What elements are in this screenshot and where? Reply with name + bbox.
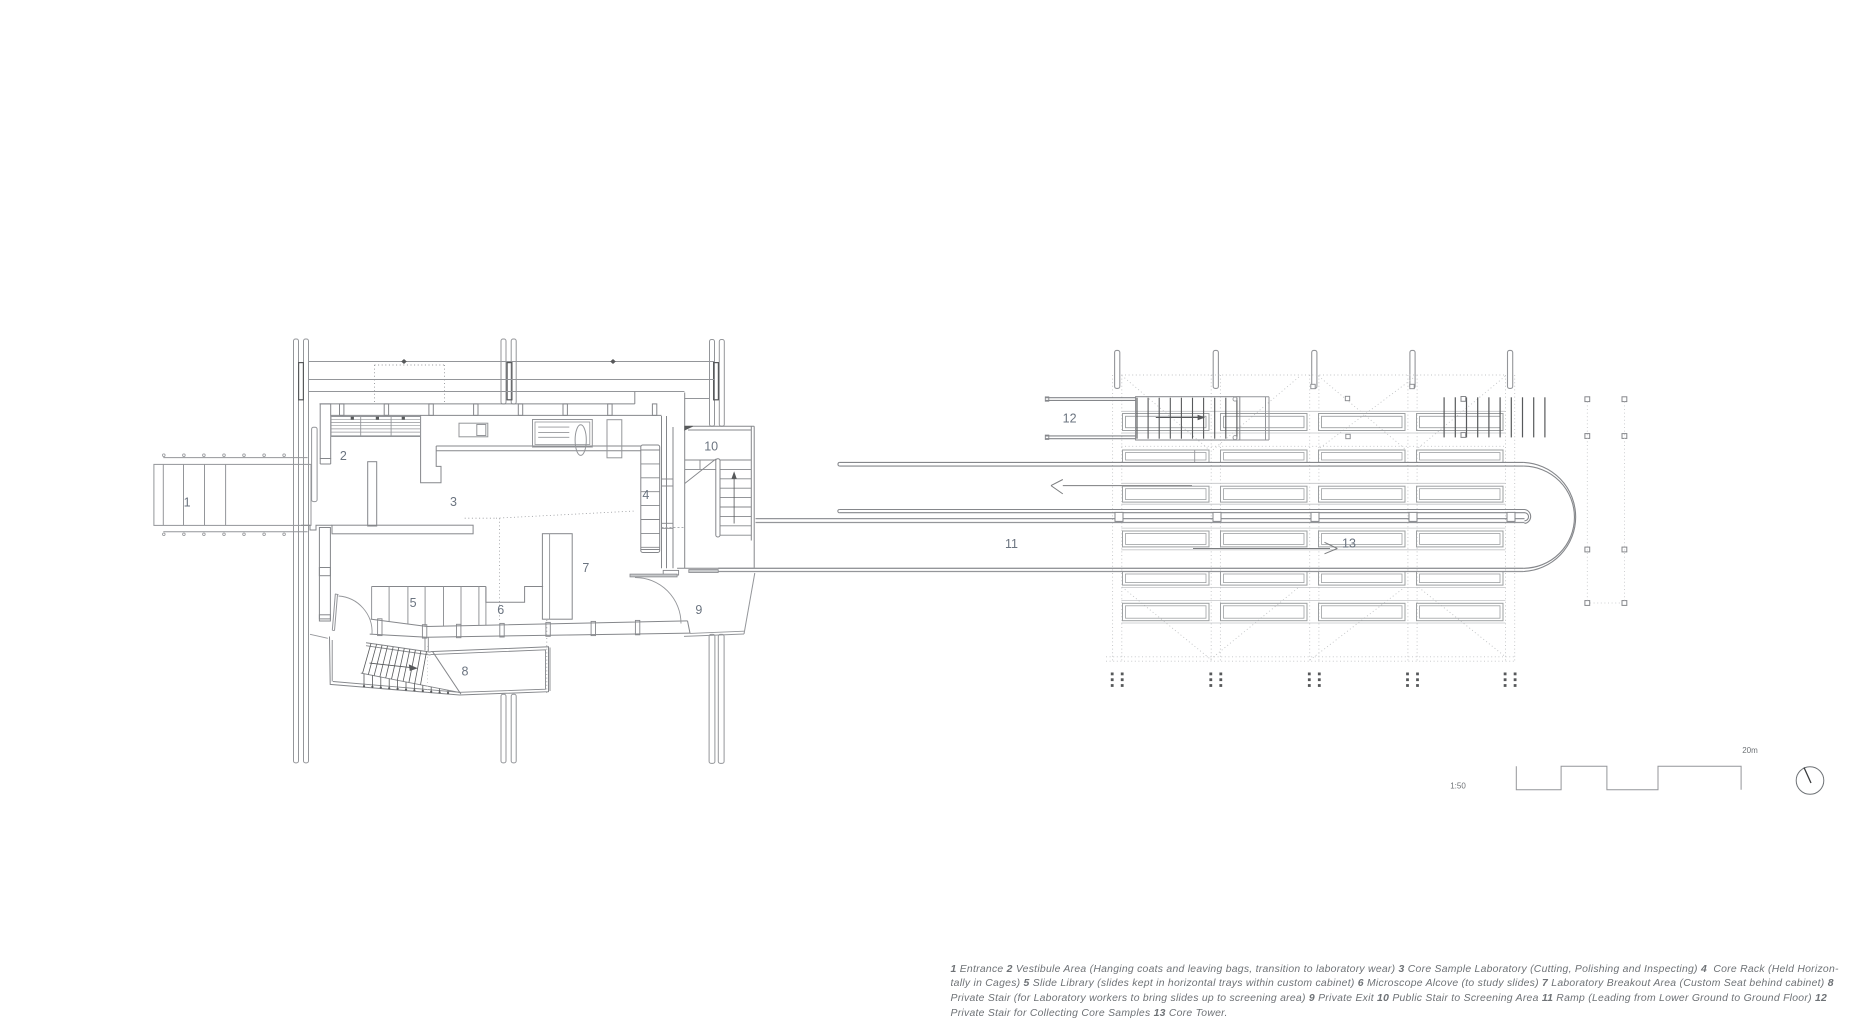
svg-text:6: 6	[497, 603, 504, 617]
svg-text:20m: 20m	[1742, 746, 1758, 755]
svg-text:11: 11	[1005, 537, 1018, 551]
svg-text:3: 3	[450, 495, 457, 509]
svg-text:1: 1	[184, 496, 191, 510]
svg-text:8: 8	[462, 665, 469, 679]
svg-text:10: 10	[704, 440, 718, 454]
svg-text:12: 12	[1063, 412, 1077, 426]
svg-text:4: 4	[642, 488, 649, 502]
svg-text:13: 13	[1342, 537, 1356, 551]
svg-text:1:50: 1:50	[1450, 782, 1466, 791]
svg-text:7: 7	[582, 561, 589, 575]
svg-text:9: 9	[695, 603, 702, 617]
svg-text:2: 2	[340, 449, 347, 463]
svg-text:5: 5	[410, 596, 417, 610]
